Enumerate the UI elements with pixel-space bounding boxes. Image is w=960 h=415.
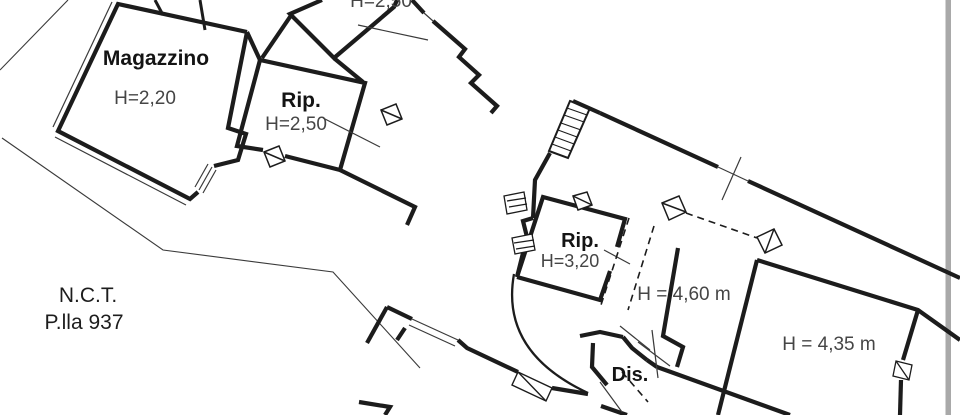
boundary-line-top-left — [0, 0, 68, 70]
bl-wall-top-b — [458, 340, 518, 372]
pilaster-symbols — [573, 192, 782, 253]
room-label-rip1: Rip. — [281, 89, 321, 112]
magazzino-door-hatch — [203, 170, 216, 193]
room-label-magazzino: Magazzino — [103, 47, 209, 70]
room435-right-wall-b — [900, 380, 901, 415]
bottom-left-building-details — [409, 319, 458, 346]
connector-wall-1 — [247, 32, 260, 60]
bl-window-symbol — [512, 372, 552, 401]
room435-top-wall — [757, 260, 960, 340]
bottom-left-building-walls — [359, 307, 588, 415]
wall-below-rip1 — [340, 170, 415, 225]
ne-door-tick — [722, 157, 741, 200]
hall-bottom-wall — [657, 367, 790, 415]
bl-wall-to-arc-tip — [552, 388, 588, 394]
ne-wall-opening — [424, 13, 433, 21]
magazzino-door-hatch — [199, 167, 212, 190]
parcel-number-label: P.lla 937 — [44, 311, 123, 334]
dashed-line-3 — [686, 213, 757, 238]
height-label-top-partial: H=2,50 — [350, 0, 412, 12]
wall-stub-top-2 — [200, 0, 205, 30]
magazzino-outer-thin-bottom — [55, 137, 186, 205]
passage-tick-2 — [652, 330, 658, 378]
height-label-rip2: H=3,20 — [541, 251, 600, 271]
bl-wall-top-a — [387, 307, 412, 319]
left-building-walls — [58, 0, 497, 225]
bottom-edge-stub — [601, 406, 627, 415]
top-room-left-wall — [262, 14, 292, 58]
height-label-magazzino: H=2,20 — [114, 88, 176, 109]
room435-right-wall-a — [903, 310, 918, 360]
opening-tick-line — [323, 118, 380, 147]
height-label-hall: H = 4,60 m — [637, 284, 730, 305]
page-edge-bar — [946, 0, 952, 415]
parcel-registry-label: N.C.T. — [59, 284, 117, 307]
separating-wall — [663, 248, 683, 367]
room-label-rip2: Rip. — [561, 230, 599, 252]
height-label-room435: H = 4,35 m — [782, 334, 875, 355]
floor-plan-canvas: Magazzino H=2,20 Rip. H=2,50 H=2,50 N.C.… — [0, 0, 960, 415]
floor-plan-page: Magazzino H=2,20 Rip. H=2,50 H=2,50 N.C.… — [0, 0, 960, 415]
opening-tick-line — [358, 25, 428, 40]
bl-wall-bottom — [359, 402, 390, 415]
ne-wall-lower — [433, 21, 497, 113]
window-west-1 — [504, 192, 527, 214]
bl-inner-step — [397, 328, 405, 340]
dis-wall-top — [580, 332, 623, 337]
height-label-rip1: H=2,50 — [265, 114, 327, 135]
stair-outline — [549, 101, 590, 158]
room-label-dis: Dis. — [612, 364, 649, 386]
ne-outer-wall-a — [600, 113, 718, 167]
rip2-room-walls-b — [517, 271, 610, 300]
dis-wall-right — [623, 337, 647, 360]
ne-wall-upper — [412, 0, 424, 13]
stair-symbol — [549, 101, 590, 158]
ne-outer-wall-b — [748, 181, 960, 278]
dis-wall-left — [592, 343, 607, 385]
magazzino-door-hatch — [195, 164, 208, 187]
window-west-2 — [512, 234, 535, 254]
